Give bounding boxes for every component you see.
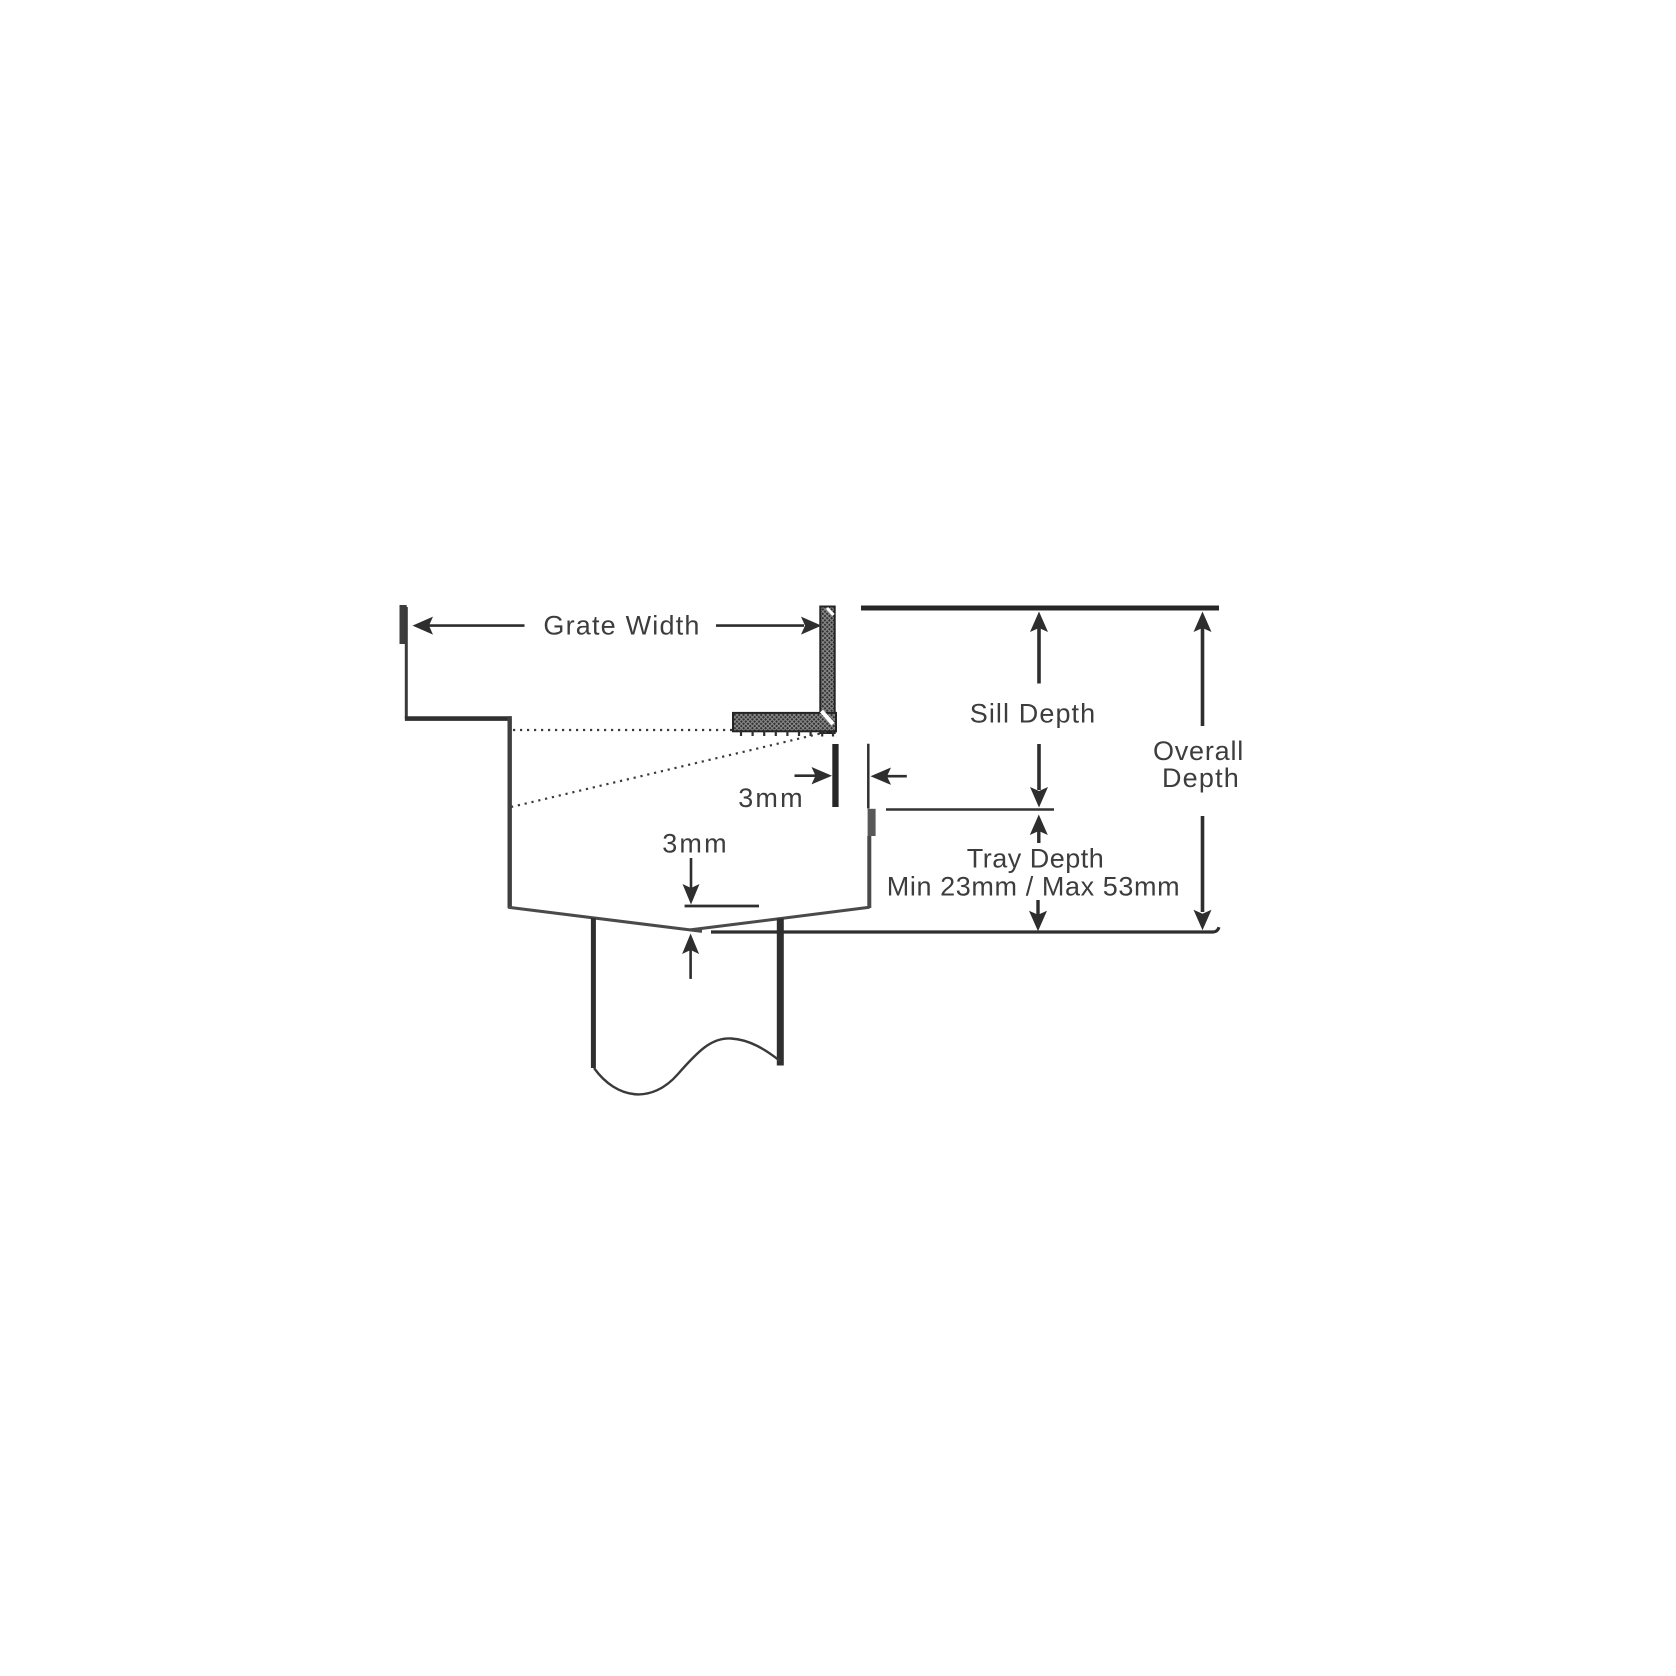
svg-text:Depth: Depth bbox=[1162, 763, 1240, 793]
svg-text:3mm: 3mm bbox=[738, 783, 805, 813]
svg-text:Min 23mm / Max 53mm: Min 23mm / Max 53mm bbox=[887, 872, 1180, 902]
svg-text:Grate Width: Grate Width bbox=[543, 611, 700, 641]
svg-text:Sill Depth: Sill Depth bbox=[970, 699, 1097, 729]
svg-text:Tray Depth: Tray Depth bbox=[967, 844, 1105, 874]
svg-text:3mm: 3mm bbox=[662, 829, 729, 859]
svg-text:Overall: Overall bbox=[1153, 736, 1244, 766]
